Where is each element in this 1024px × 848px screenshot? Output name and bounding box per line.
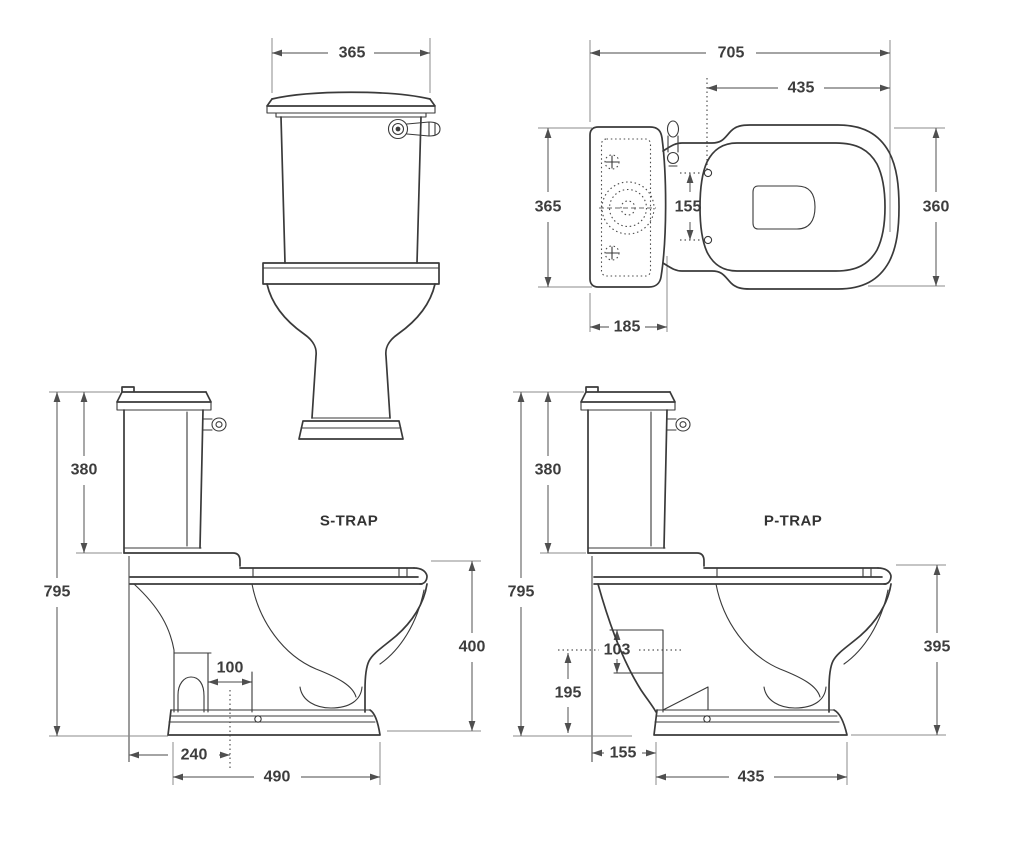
plan-dim-cistern-length-label: 185 — [614, 319, 641, 336]
p-trap-dim-cistern-height: 380 — [535, 392, 586, 553]
s-trap-dim-overall-height: 795 — [44, 392, 168, 736]
p-trap-dim-outlet-bore: 103 — [599, 630, 636, 673]
p-trap-dim-outlet-centre-height: 195 — [555, 653, 582, 733]
s-trap-dim-overall-height-label: 795 — [44, 584, 71, 601]
p-trap-label: P-TRAP — [764, 513, 822, 530]
p-trap-dim-base-depth: 435 — [656, 742, 847, 786]
p-trap-dim-rim-height: 395 — [851, 565, 950, 735]
plan-dim-hinge-centres-label: 155 — [675, 199, 702, 216]
front-dim-width: 365 — [272, 38, 430, 93]
plan-dim-bowl-width-label: 360 — [923, 199, 950, 216]
s-trap-view: S-TRAP 795 380 400 100 240 — [44, 387, 486, 786]
s-trap-dim-trap-width: 100 — [208, 660, 252, 683]
plan-dim-cistern-depth: 365 — [535, 128, 592, 287]
plan-dim-overall-length: 705 — [590, 40, 890, 232]
s-trap-dim-rim-height: 400 — [387, 561, 485, 731]
plan-cistern-lid-details — [599, 139, 656, 276]
front-cistern — [267, 92, 435, 263]
p-trap-cistern — [581, 387, 704, 566]
p-trap-dim-wall-to-base: 155 — [592, 745, 656, 762]
plan-hinge-holes — [704, 169, 711, 243]
s-trap-dim-cistern-height: 380 — [71, 392, 122, 553]
plan-dim-hinge-centres: 155 — [675, 173, 702, 240]
plan-cistern — [590, 127, 666, 287]
p-trap-dim-overall-height-label: 795 — [508, 584, 535, 601]
p-trap-dim-outlet-bore-label: 103 — [604, 642, 631, 659]
s-trap-cistern — [117, 387, 240, 566]
s-trap-base — [168, 710, 380, 735]
p-trap-dim-base-depth-label: 435 — [738, 769, 765, 786]
front-bowl — [263, 263, 439, 439]
toilet-dimension-drawing: 365 — [0, 0, 1024, 848]
p-trap-bowl — [598, 584, 891, 712]
s-trap-dim-outlet-setout: 240 — [129, 690, 230, 768]
s-trap-dim-cistern-height-label: 380 — [71, 462, 98, 479]
p-trap-seat — [594, 568, 891, 584]
plan-dim-bowl-width: 360 — [868, 128, 949, 286]
p-trap-view: P-TRAP 795 380 395 103 — [508, 387, 951, 786]
s-trap-seat — [130, 568, 427, 584]
plan-view: 705 435 365 185 155 — [535, 40, 950, 336]
p-trap-base — [654, 710, 847, 735]
s-trap-dim-rim-height-label: 400 — [459, 639, 486, 656]
front-dim-width-label: 365 — [339, 45, 366, 62]
s-trap-dim-trap-width-label: 100 — [217, 660, 244, 677]
p-trap-dim-rim-height-label: 395 — [924, 639, 951, 656]
p-trap-dim-cistern-height-label: 380 — [535, 462, 562, 479]
front-view: 365 — [263, 38, 440, 439]
p-trap-dim-wall-to-base-label: 155 — [610, 745, 637, 762]
front-flush-lever — [389, 120, 441, 139]
s-trap-dim-base-depth-label: 490 — [264, 769, 291, 786]
plan-dim-overall-length-label: 705 — [718, 45, 745, 62]
plan-dim-cistern-depth-label: 365 — [535, 199, 562, 216]
plan-dim-seat-length-label: 435 — [788, 80, 815, 97]
p-trap-dim-outlet-centre-height-label: 195 — [555, 685, 582, 702]
s-trap-dim-outlet-setout-label: 240 — [181, 747, 208, 764]
technical-drawing-page: 365 — [0, 0, 1024, 848]
s-trap-label: S-TRAP — [320, 513, 378, 530]
plan-dim-cistern-length: 185 — [590, 256, 667, 336]
